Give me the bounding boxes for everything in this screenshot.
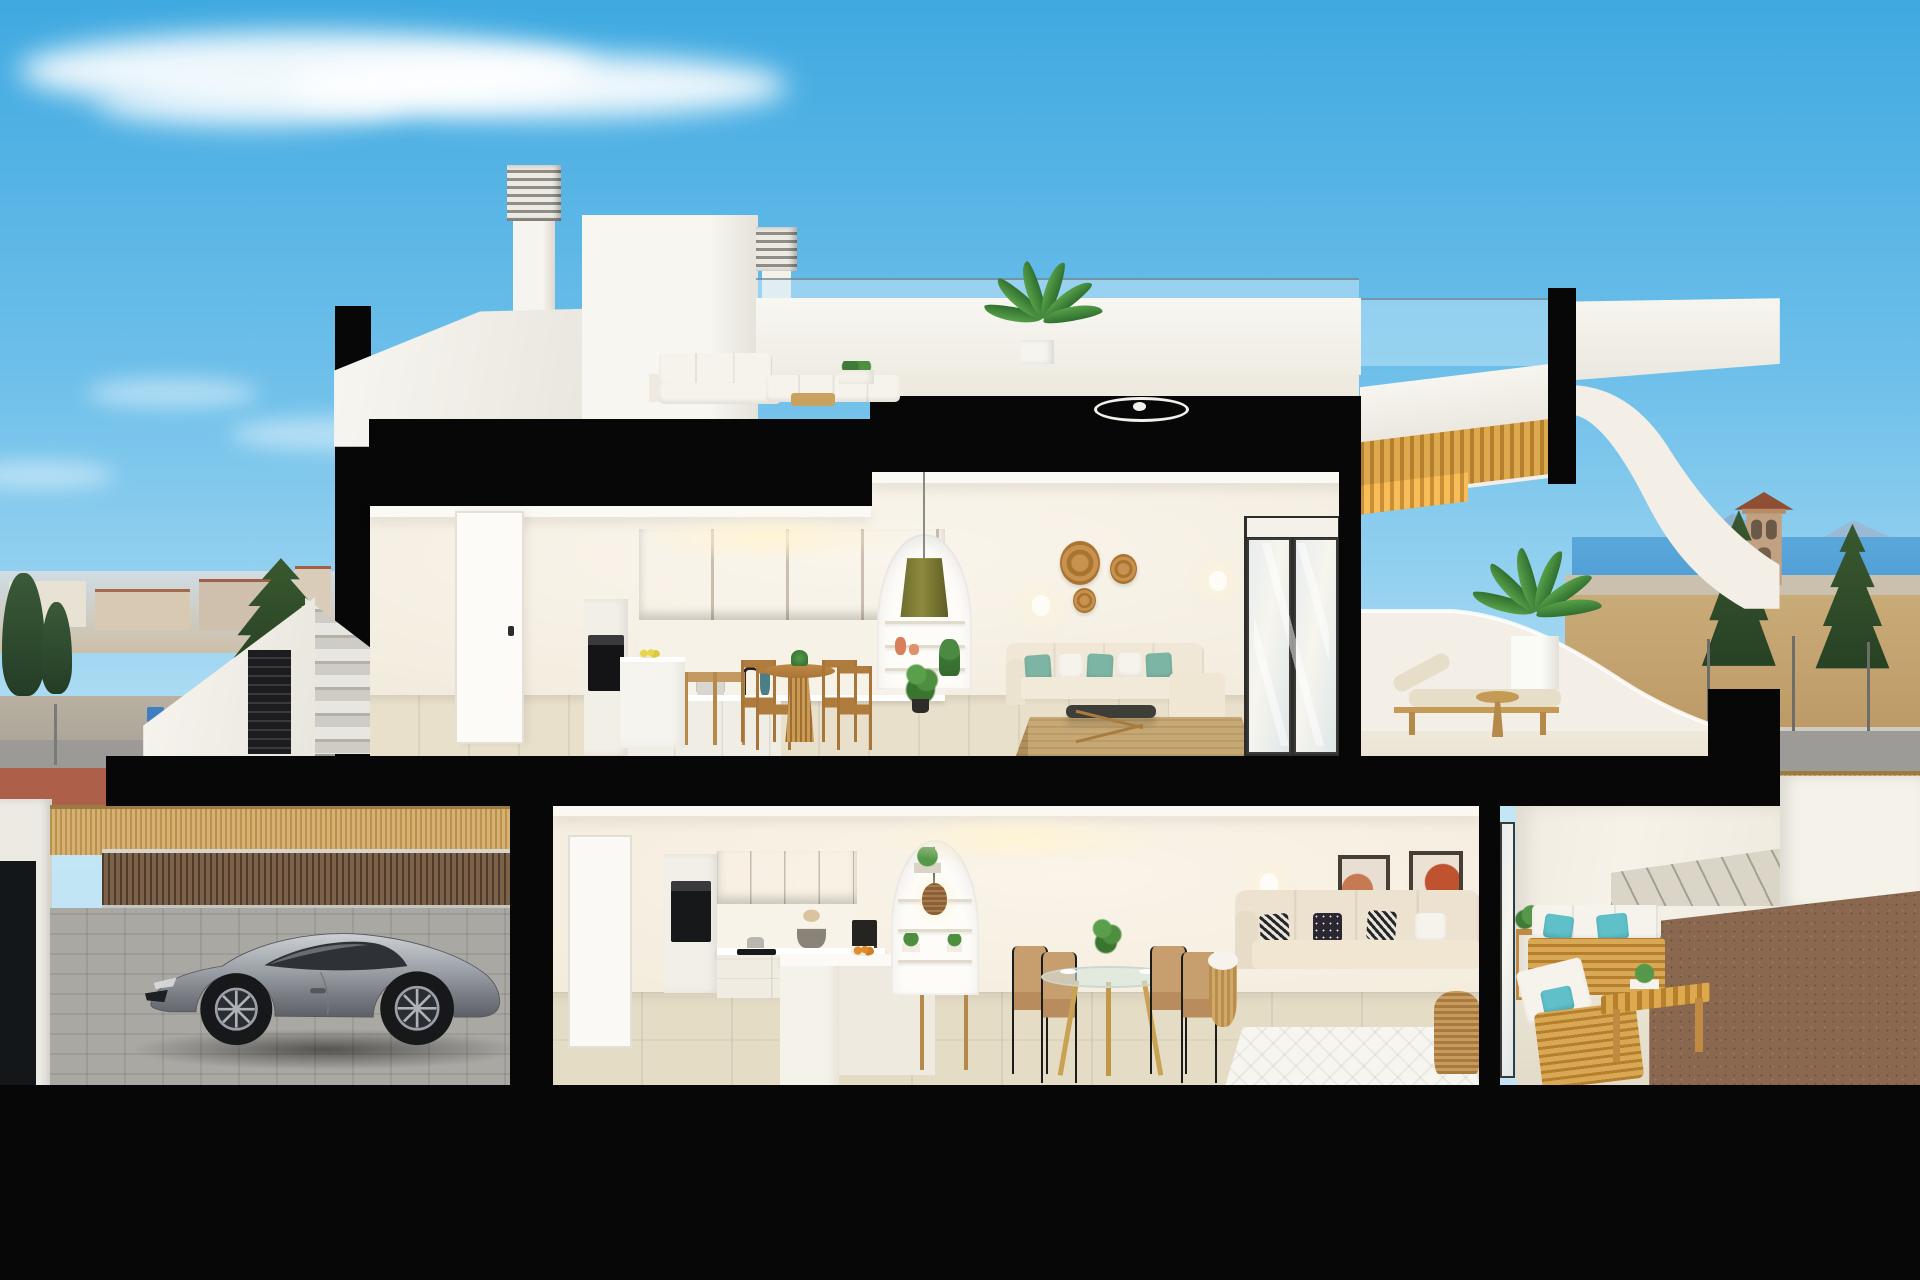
cut-column-lower-door: [1479, 806, 1500, 1088]
trailing-plant: [939, 639, 960, 676]
outdoor-sofa2-frame: [1534, 1001, 1644, 1090]
rattan-coffee-table: [1434, 991, 1480, 1074]
orange-vase: [895, 637, 907, 655]
built-in-oven-lower: [671, 881, 711, 942]
cloud: [96, 81, 403, 127]
niche-shelf: [898, 929, 972, 932]
blind-box: [1247, 518, 1338, 537]
orange-bowl: [851, 946, 874, 956]
sliding-door-glass-lower: [1500, 822, 1514, 1078]
bench-table-leg: [1613, 1009, 1621, 1063]
glass-table-leg: [1106, 982, 1111, 1077]
chimney-louver-cap: [507, 165, 561, 221]
sofa-seat-lower: [1252, 940, 1480, 969]
bench-plant: [1630, 963, 1659, 990]
cloud: [86, 378, 259, 409]
teal-cushion: [1146, 652, 1173, 679]
niche-shelf: [898, 960, 972, 963]
built-in-oven: [588, 635, 624, 691]
reed-fence: [50, 805, 517, 855]
car-side-vent: [310, 988, 326, 993]
sliding-door-glass: [1294, 538, 1338, 754]
shelf-plant: [902, 933, 919, 952]
rattan-wall-basket: [1110, 554, 1137, 583]
chimney-louver-cap: [756, 227, 796, 272]
lounger-leg: [1540, 712, 1546, 735]
black-cushion: [1313, 913, 1342, 942]
pendant-cord: [923, 472, 925, 562]
oak-upper-cabinets-lower: [717, 851, 857, 903]
interior-glow: [864, 813, 1171, 864]
rattan-wall-basket: [1060, 541, 1100, 585]
lemon-bowl: [637, 649, 660, 658]
lounger-leg: [1409, 712, 1415, 735]
roof-palm-pot: [1021, 340, 1054, 363]
roof-coffee-table: [791, 393, 835, 406]
table-plant: [791, 650, 808, 665]
kitchen-island: [620, 657, 685, 748]
sports-car: [138, 895, 507, 1046]
pampas-decor: [797, 905, 826, 949]
fan-hub: [1133, 402, 1146, 411]
entry-door: [455, 511, 524, 744]
external-staircase: [106, 594, 375, 758]
car-grille: [145, 990, 168, 1002]
plant-centerpiece: [1087, 915, 1125, 953]
lamp-pole: [1867, 642, 1870, 730]
cut-base-band: [0, 1085, 1920, 1280]
neighbour-wall: [1780, 776, 1920, 909]
sun-lounger-frame: [1394, 707, 1559, 713]
floor-plant: [900, 663, 940, 701]
niche-shelf: [885, 621, 965, 624]
cream-cushion: [1117, 653, 1142, 679]
sliding-door-glass: [1247, 538, 1291, 754]
cream-cushion: [1058, 654, 1083, 680]
olive-pendant-lamp: [900, 558, 948, 617]
cut-step-right: [1708, 689, 1780, 807]
sofa-chaise: [1169, 673, 1225, 724]
roof-planter-box: [839, 370, 874, 384]
palm-planter: [1511, 636, 1559, 688]
lamp-pole: [54, 704, 57, 765]
cut-floor-band: [106, 756, 1708, 807]
bw-cushion: [1366, 910, 1397, 941]
turquoise-pillow: [1596, 912, 1629, 941]
plant-pot: [912, 699, 929, 713]
lamp-pole: [1792, 636, 1795, 731]
terrace-palm: [1473, 548, 1600, 643]
interior-glow: [634, 512, 903, 563]
gate-opening: [0, 861, 36, 1094]
roof-glass-railing-right: [1361, 298, 1547, 365]
scene-stage: [0, 0, 1920, 1280]
curved-balustrade: [1575, 371, 1779, 609]
lower-door: [568, 835, 632, 1049]
cut-column-garage: [510, 806, 553, 1088]
side-table-top: [1476, 691, 1518, 703]
upper-ceiling-trim-right: [871, 471, 1359, 483]
cream-cushion: [1415, 913, 1446, 944]
balustrade-curve: [1575, 385, 1779, 608]
car-front-spokes: [218, 990, 255, 1027]
wall-sconce: [1032, 595, 1050, 615]
backsplash-lower: [717, 904, 857, 949]
peninsula-waterfall: [780, 966, 840, 1085]
cut-slab-right-roof: [1548, 288, 1577, 484]
roof-palm: [985, 259, 1100, 349]
bar-stool: [685, 672, 716, 745]
door-handle: [508, 626, 514, 636]
shelf-plant: [947, 934, 962, 952]
rattan-pendant-lamp: [922, 883, 947, 915]
wall-sconce: [1209, 571, 1227, 591]
dining-chair: [837, 666, 872, 750]
louvered-gate: [248, 650, 291, 755]
orange-vase: [909, 644, 919, 656]
jute-rug: [1016, 717, 1256, 757]
bench-table-leg: [1695, 998, 1703, 1052]
cut-ceiling-band-left: [369, 419, 872, 506]
turquoise-pillow: [1542, 913, 1574, 941]
roof-sofa-seat: [659, 383, 782, 405]
